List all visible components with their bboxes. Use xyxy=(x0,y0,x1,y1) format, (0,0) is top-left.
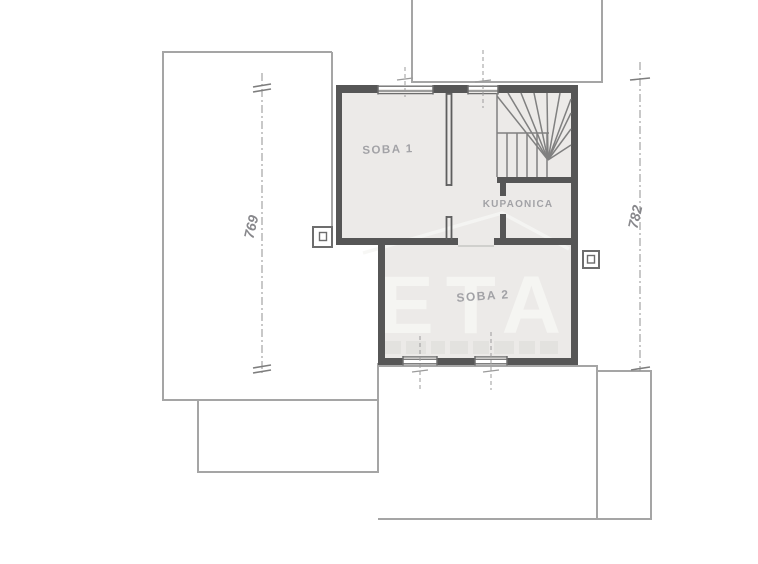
wall-top-seg3 xyxy=(498,85,578,93)
wall-bath-jamb-top xyxy=(500,183,506,196)
watermark-block xyxy=(519,341,535,354)
wall-top-seg2 xyxy=(433,85,468,93)
wall-right xyxy=(571,85,578,365)
wall-middle-seg2 xyxy=(494,238,578,245)
watermark-text: ETA xyxy=(379,260,573,351)
watermark-block xyxy=(450,341,468,354)
watermark-block xyxy=(540,341,558,354)
doorway-floor xyxy=(458,238,494,246)
chimney-right-icon xyxy=(583,251,599,268)
watermark-block xyxy=(385,341,401,354)
room-label-kupaonica: KUPAONICA xyxy=(483,199,554,210)
wall-bottom-seg1 xyxy=(378,358,403,365)
floor-plan-drawing: ETA xyxy=(0,0,758,564)
wall-left xyxy=(336,85,342,245)
wall-top-seg1 xyxy=(337,85,378,93)
wall-middle-seg1 xyxy=(336,238,458,245)
room-label-soba1: SOBA 1 xyxy=(362,143,414,157)
watermark-block xyxy=(473,341,489,354)
wall-bottom-seg3 xyxy=(507,358,578,365)
watermark-block xyxy=(406,341,426,354)
wall-stairs-bottom xyxy=(497,177,571,183)
wall-bath-jamb-bottom xyxy=(500,214,506,240)
wall-bottom-seg2 xyxy=(437,358,475,365)
stair-winder xyxy=(547,93,548,160)
watermark-block xyxy=(431,341,445,354)
wall-soba2-left xyxy=(378,238,385,365)
watermark-block xyxy=(494,341,514,354)
floor-plan-canvas: ETA xyxy=(0,0,758,564)
chimney-left-icon xyxy=(313,227,332,247)
